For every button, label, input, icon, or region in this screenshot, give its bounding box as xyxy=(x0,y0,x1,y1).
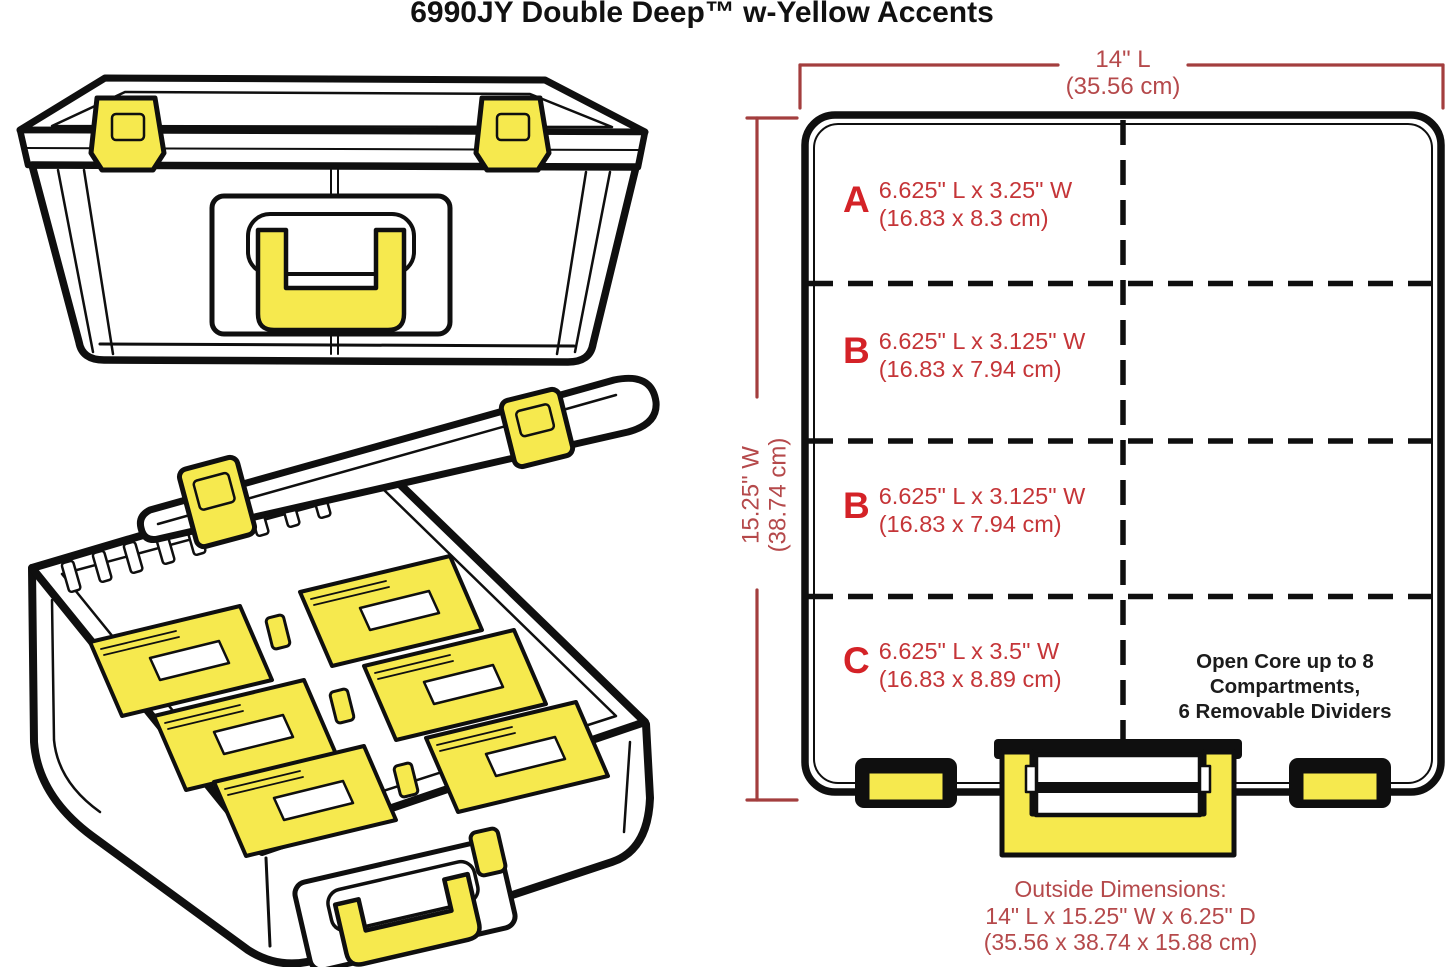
compartment-row-c: C 6.625" L x 3.5" W (16.83 x 8.89 cm) xyxy=(843,637,1062,693)
compartment-letter: B xyxy=(843,487,870,538)
compartment-size-metric: (16.83 x 7.94 cm) xyxy=(879,355,1086,383)
compartment-size-metric: (16.83 x 8.3 cm) xyxy=(879,204,1072,232)
length-dimension-value: 14" L xyxy=(1023,46,1223,73)
compartment-size-metric: (16.83 x 8.89 cm) xyxy=(879,665,1062,693)
compartment-size-imperial: 6.625" L x 3.125" W xyxy=(879,482,1086,510)
length-dimension-label: 14" L (35.56 cm) xyxy=(1023,46,1223,100)
compartment-letter: C xyxy=(843,642,870,693)
outside-dimensions: Outside Dimensions: 14" L x 15.25" W x 6… xyxy=(948,876,1293,956)
open-core-note-line1: Open Core up to 8 Compartments, xyxy=(1130,649,1440,699)
width-dimension-value: 15.25" W xyxy=(737,438,764,553)
compartment-row-b2: B 6.625" L x 3.125" W (16.83 x 7.94 cm) xyxy=(843,482,1085,538)
outside-dimensions-metric: (35.56 x 38.74 x 15.88 cm) xyxy=(948,929,1293,956)
schematic-latch-left xyxy=(855,758,957,808)
compartment-size-metric: (16.83 x 7.94 cm) xyxy=(879,510,1086,538)
closed-box-latch-left xyxy=(91,98,164,170)
page-title: 6990JY Double Deep™ w-Yellow Accents xyxy=(0,0,1404,30)
open-core-note-line2: 6 Removable Dividers xyxy=(1130,699,1440,724)
compartment-row-b1: B 6.625" L x 3.125" W (16.83 x 7.94 cm) xyxy=(843,327,1085,383)
outside-dimensions-heading: Outside Dimensions: xyxy=(948,876,1293,903)
width-dimension-label: 15.25" W (38.74 cm) xyxy=(682,413,846,577)
compartment-size-imperial: 6.625" L x 3.125" W xyxy=(879,327,1086,355)
open-box-lid-latch xyxy=(500,388,575,468)
schematic-handle xyxy=(994,739,1242,855)
schematic-latch-right xyxy=(1289,758,1391,808)
closed-box-drawing xyxy=(20,78,645,362)
closed-box-handle xyxy=(212,196,450,334)
compartment-size-imperial: 6.625" L x 3.5" W xyxy=(879,637,1062,665)
page: { "title": "6990JY Double Deep™ w-Yellow… xyxy=(0,0,1445,967)
compartment-size-imperial: 6.625" L x 3.25" W xyxy=(879,176,1072,204)
compartment-row-a: A 6.625" L x 3.25" W (16.83 x 8.3 cm) xyxy=(843,176,1072,232)
outside-dimensions-imperial: 14" L x 15.25" W x 6.25" D xyxy=(948,903,1293,930)
open-core-note: Open Core up to 8 Compartments, 6 Remova… xyxy=(1130,649,1440,724)
compartment-letter: B xyxy=(843,332,870,383)
width-dimension-metric: (38.74 cm) xyxy=(764,438,791,553)
length-dimension-metric: (35.56 cm) xyxy=(1023,73,1223,100)
closed-box-latch-right xyxy=(476,98,549,170)
compartment-letter: A xyxy=(843,181,870,232)
open-box-drawing xyxy=(32,378,656,967)
